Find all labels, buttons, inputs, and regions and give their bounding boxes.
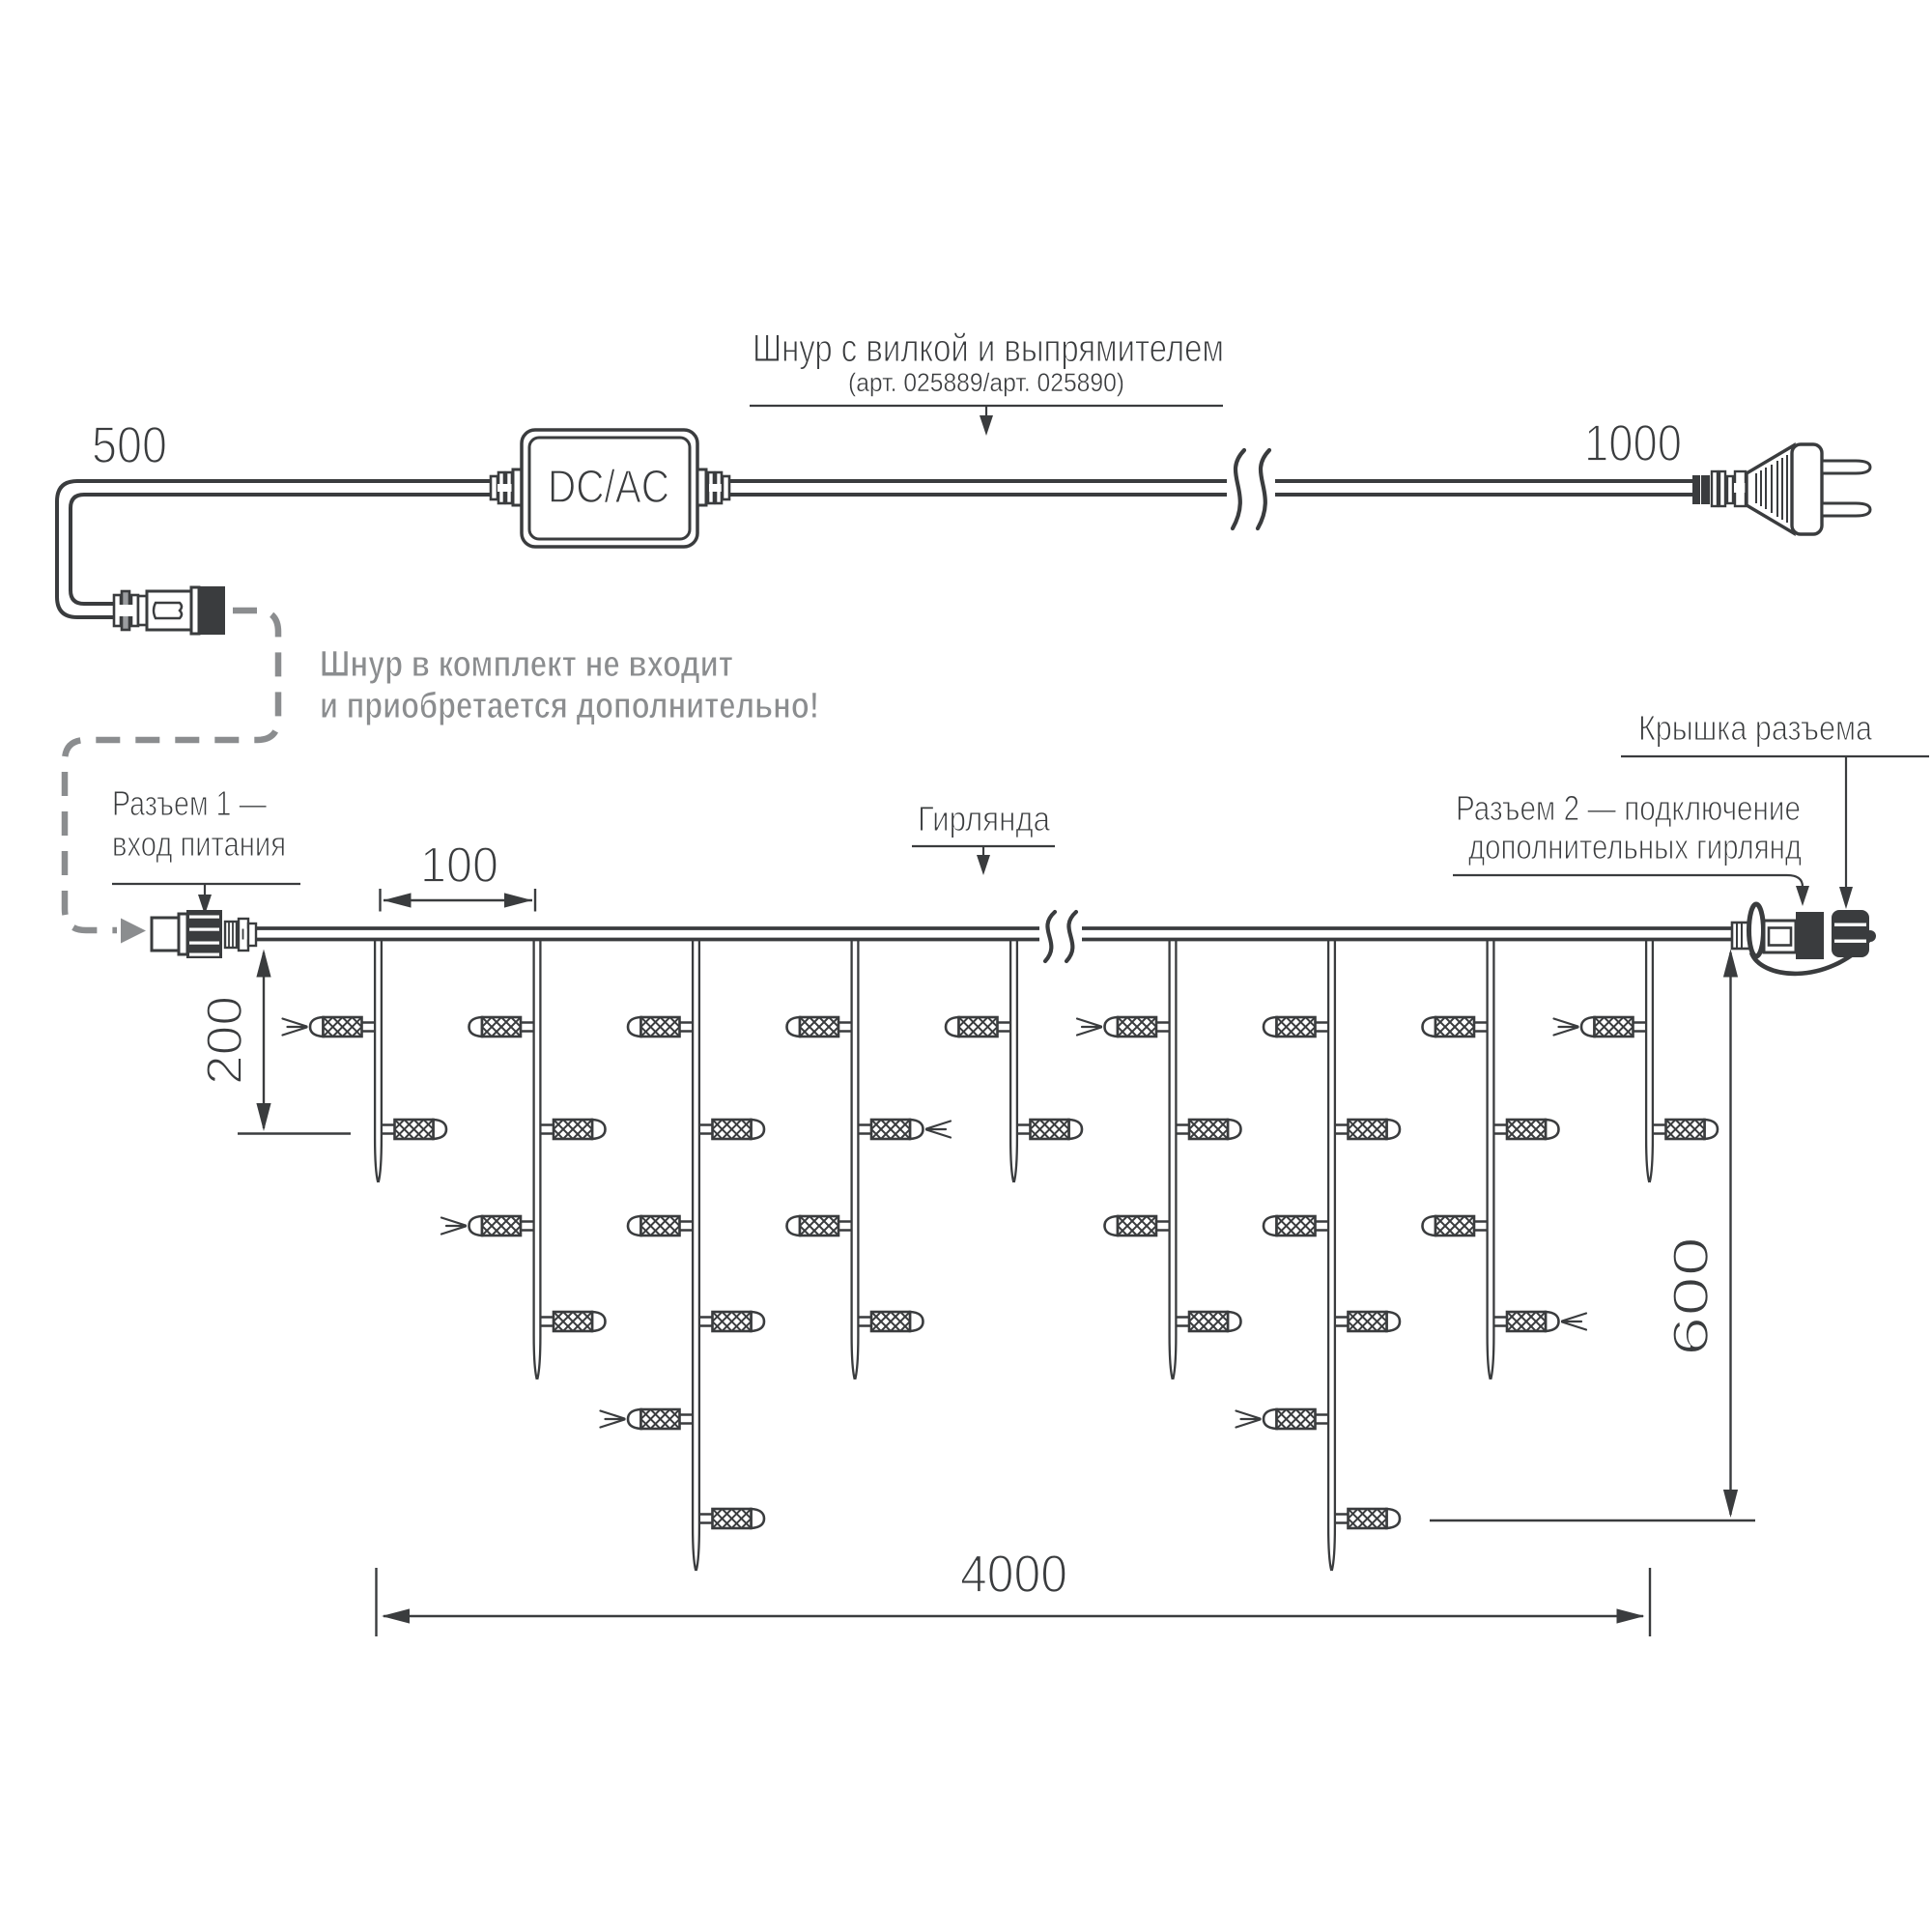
svg-text:200: 200 [197,996,253,1085]
svg-text:Крышка разъема: Крышка разъема [1638,708,1873,748]
svg-text:и приобретается дополнительно!: и приобретается дополнительно! [320,686,819,726]
svg-text:100: 100 [420,838,498,894]
svg-text:4000: 4000 [960,1544,1067,1604]
svg-text:Шнур с вилкой и выпрямителем: Шнур с вилкой и выпрямителем [753,327,1224,370]
svg-text:1000: 1000 [1584,414,1682,472]
svg-text:600: 600 [1663,1236,1719,1356]
svg-text:500: 500 [92,416,167,474]
svg-text:Разъем 1 —: Разъем 1 — [112,783,267,823]
svg-text:DC/AC: DC/AC [548,462,669,513]
svg-text:вход питания: вход питания [112,824,286,864]
svg-text:(арт. 025889/арт. 025890): (арт. 025889/арт. 025890) [848,368,1124,397]
svg-text:Гирлянда: Гирлянда [918,799,1051,838]
svg-text:Разъем 2 — подключение: Разъем 2 — подключение [1456,788,1801,828]
svg-text:дополнительных гирлянд: дополнительных гирлянд [1468,827,1802,867]
svg-text:Шнур в комплект не входит: Шнур в комплект не входит [320,644,733,685]
